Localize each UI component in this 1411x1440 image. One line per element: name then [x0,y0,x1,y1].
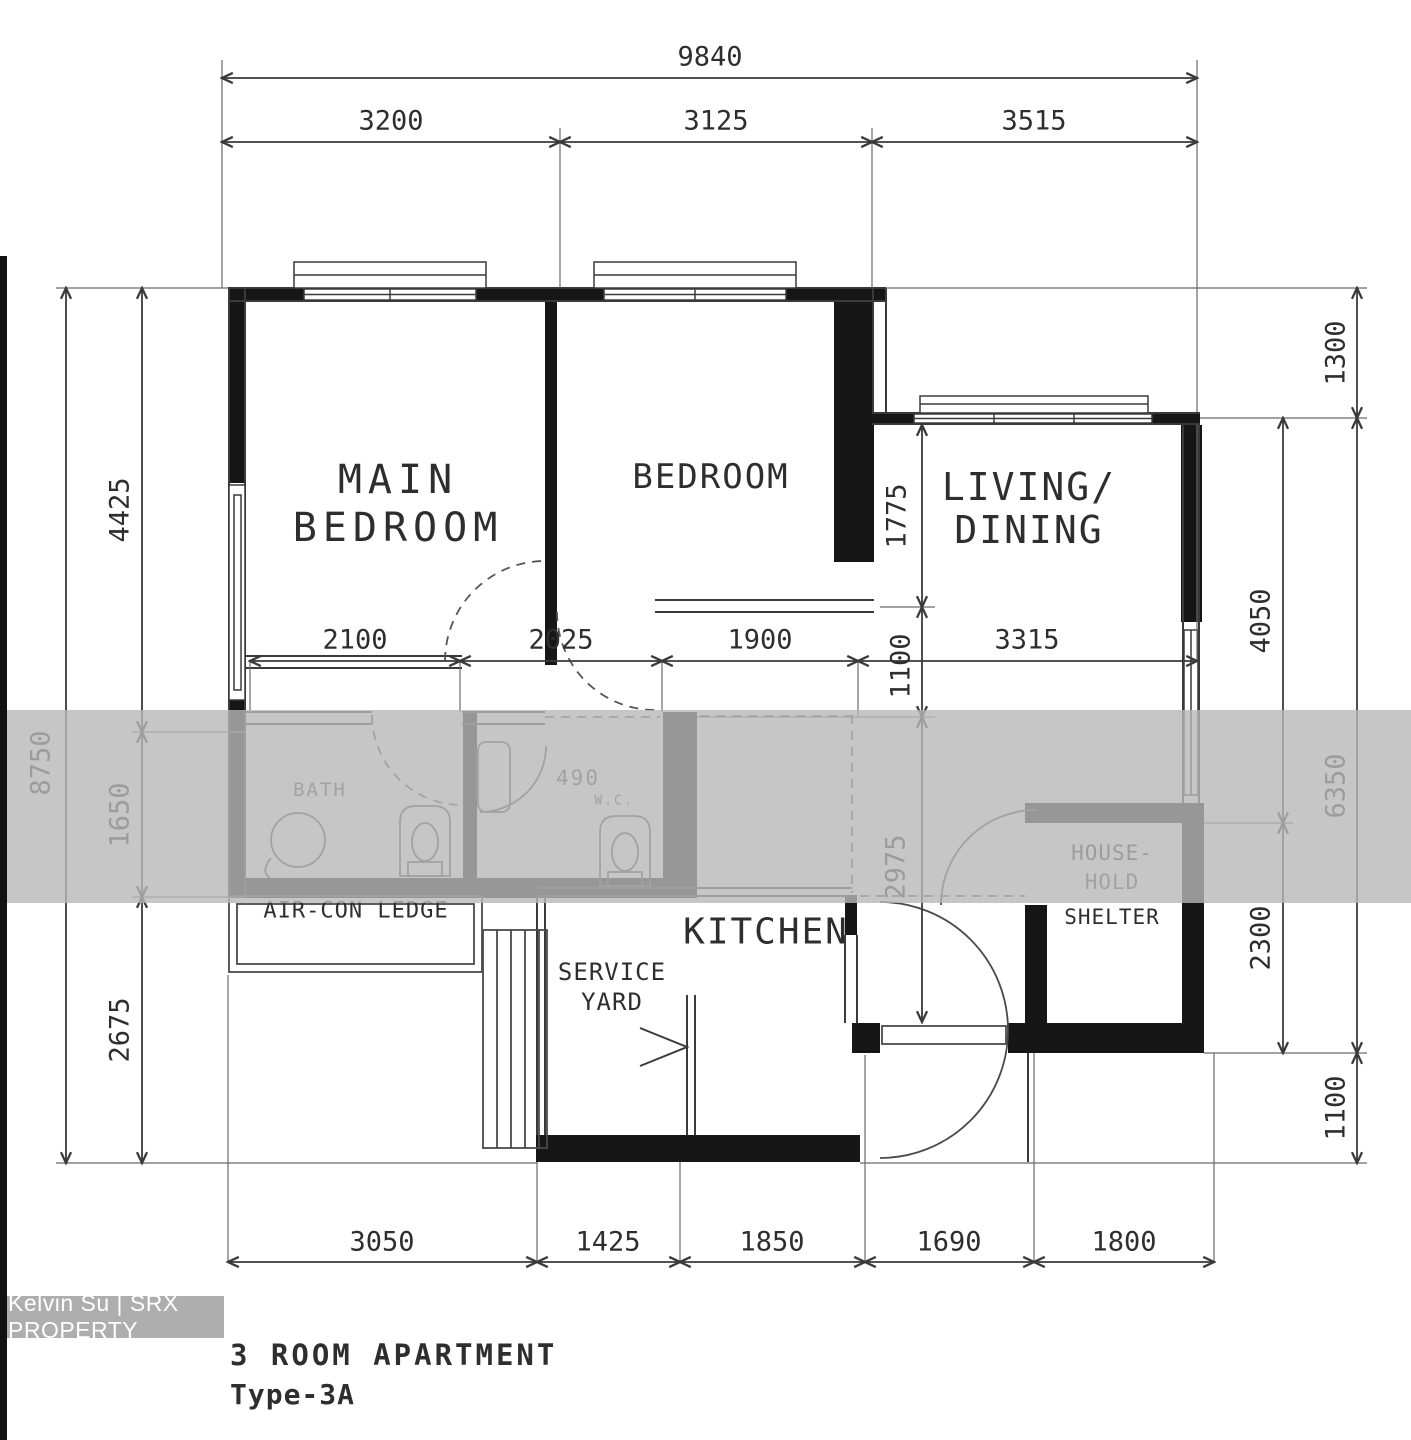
dim-mid-seg-2: 2025 [528,625,593,656]
dim-bottom-seg-5: 1800 [1091,1227,1156,1258]
dim-bottom-seg-4: 1690 [916,1227,981,1258]
dim-right-inner-2: 2300 [1246,905,1277,970]
room-label-kitchen: KITCHEN [683,912,849,953]
dim-left-seg-3: 2675 [105,997,136,1062]
room-label-service-yard: YARD [581,988,643,1016]
dim-interior-1: 1775 [882,483,913,548]
dim-mid-seg-4: 3315 [994,625,1059,656]
dim-top-total: 9840 [677,42,742,73]
dim-mid-seg-3: 1900 [727,625,792,656]
dim-top-seg-1: 3200 [358,106,423,137]
dim-top-seg-2: 3125 [683,106,748,137]
room-label-service-yard: SERVICE [558,958,666,986]
watermark-band [0,710,1411,903]
dim-bottom-seg-1: 3050 [349,1227,414,1258]
scan-edge-artifact [0,256,7,1440]
room-label-living-dining: LIVING/ [942,465,1116,509]
dim-right-inner-1: 4050 [1246,588,1277,653]
room-label-living-dining: DINING [954,508,1103,552]
entrance-door-arc-upper [880,902,1008,1030]
plan-title: 3 ROOM APARTMENT [230,1338,557,1372]
floorplan-page: 9840 3200 3125 3515 8750 4425 1650 2675 … [0,0,1411,1440]
room-label-main-bedroom: MAIN [338,457,458,503]
dim-left-seg-1: 4425 [105,477,136,542]
entrance-door-arc-lower [880,1030,1008,1158]
aircon-ledge-layer [229,896,547,1148]
dim-bottom-seg-3: 1850 [739,1227,804,1258]
dim-bottom-seg-2: 1425 [575,1227,640,1258]
dim-mid-seg-1: 2100 [322,625,387,656]
dim-interior-2: 1100 [886,633,917,698]
room-label-household-shelter: SHELTER [1064,905,1160,929]
dim-right-seg-1: 1300 [1321,320,1352,385]
room-label-main-bedroom: BEDROOM [293,505,504,551]
watermark-badge-text: Kelvin Su | SRX PROPERTY [0,1290,224,1344]
watermark-badge: Kelvin Su | SRX PROPERTY [0,1296,224,1338]
plan-title-block: 3 ROOM APARTMENT Type-3A [230,1338,557,1411]
plan-type: Type-3A [230,1378,557,1411]
dim-right-seg-3: 1100 [1321,1075,1352,1140]
room-label-bedroom: BEDROOM [632,457,789,497]
dim-top-seg-3: 3515 [1001,106,1066,137]
entrance-door-leaf [882,1026,1006,1044]
dimension-lines-layer [66,78,1357,1262]
